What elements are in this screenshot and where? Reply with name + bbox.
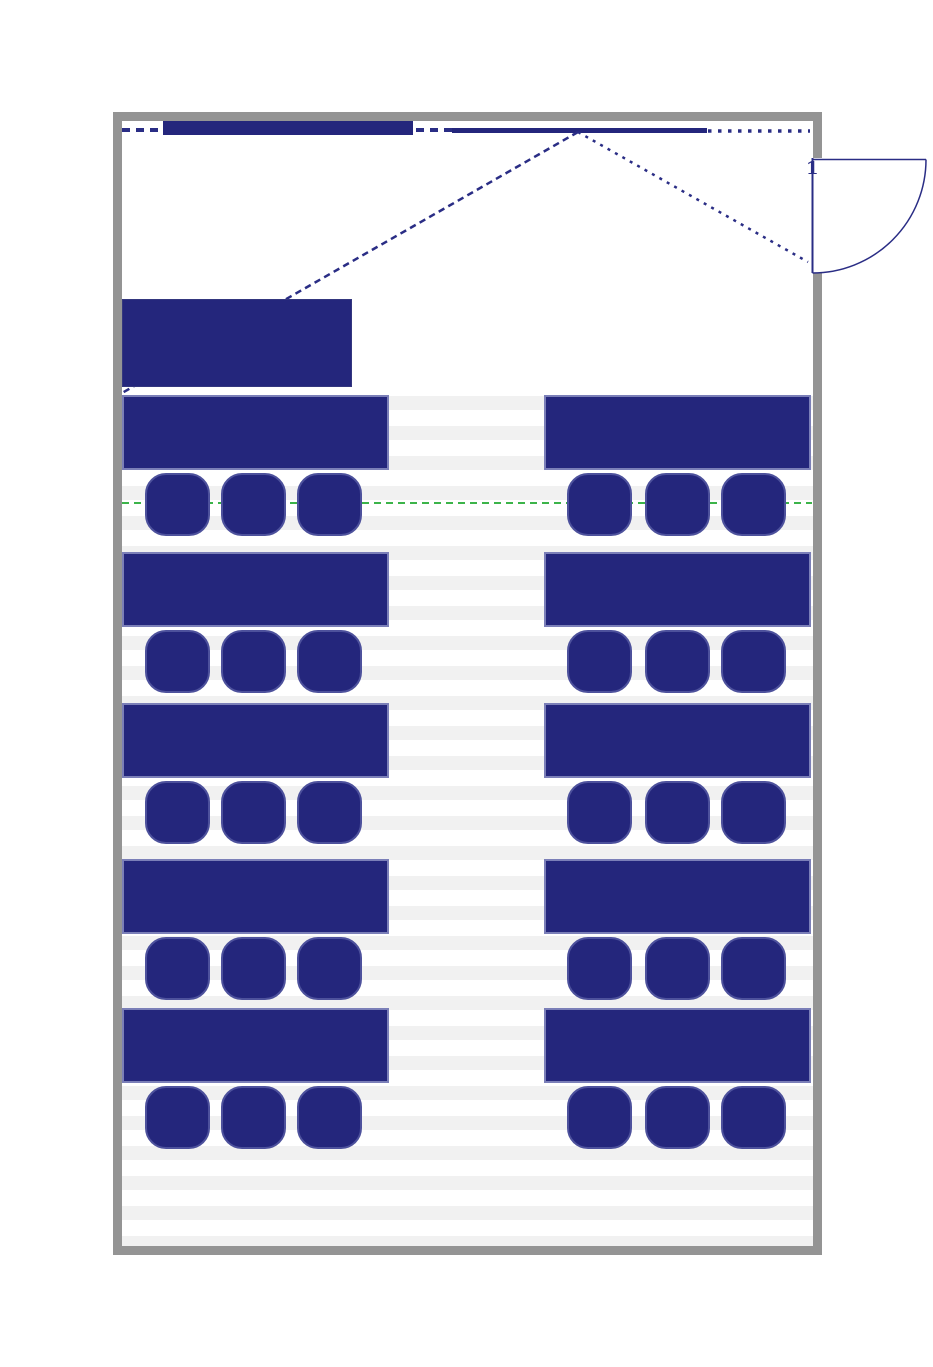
- student-desk-row1-left[interactable]: [122, 395, 389, 470]
- chair-row2-right-1[interactable]: [567, 630, 632, 693]
- chair-row2-right-2[interactable]: [645, 630, 710, 693]
- student-desk-row4-left[interactable]: [122, 859, 389, 934]
- chair-row3-right-2[interactable]: [645, 781, 710, 844]
- chair-row2-left-1[interactable]: [145, 630, 210, 693]
- student-desk-row3-right[interactable]: [544, 703, 811, 778]
- chair-row4-left-2[interactable]: [221, 937, 286, 1000]
- chair-row2-left-3[interactable]: [297, 630, 362, 693]
- chair-row5-right-3[interactable]: [721, 1086, 786, 1149]
- chair-row4-left-1[interactable]: [145, 937, 210, 1000]
- chair-row3-left-3[interactable]: [297, 781, 362, 844]
- chair-row1-left-3[interactable]: [297, 473, 362, 536]
- chair-row1-right-1[interactable]: [567, 473, 632, 536]
- chair-row5-right-2[interactable]: [645, 1086, 710, 1149]
- chair-row3-left-2[interactable]: [221, 781, 286, 844]
- chair-row1-left-2[interactable]: [221, 473, 286, 536]
- student-desk-row3-left[interactable]: [122, 703, 389, 778]
- floor-plan-canvas: 1: [0, 0, 933, 1367]
- chair-row4-right-2[interactable]: [645, 937, 710, 1000]
- chair-row4-left-3[interactable]: [297, 937, 362, 1000]
- chair-row5-left-2[interactable]: [221, 1086, 286, 1149]
- student-desk-row2-right[interactable]: [544, 552, 811, 627]
- chair-row5-left-1[interactable]: [145, 1086, 210, 1149]
- student-desk-row5-right[interactable]: [544, 1008, 811, 1083]
- chair-row3-left-1[interactable]: [145, 781, 210, 844]
- chair-row2-left-2[interactable]: [221, 630, 286, 693]
- student-desk-row1-right[interactable]: [544, 395, 811, 470]
- furniture-layer: [0, 0, 933, 1367]
- teacher-desk[interactable]: [122, 299, 352, 387]
- chair-row4-right-3[interactable]: [721, 937, 786, 1000]
- student-desk-row2-left[interactable]: [122, 552, 389, 627]
- chair-row1-left-1[interactable]: [145, 473, 210, 536]
- chair-row2-right-3[interactable]: [721, 630, 786, 693]
- chair-row3-right-1[interactable]: [567, 781, 632, 844]
- chair-row5-right-1[interactable]: [567, 1086, 632, 1149]
- chair-row4-right-1[interactable]: [567, 937, 632, 1000]
- chair-row1-right-3[interactable]: [721, 473, 786, 536]
- chair-row3-right-3[interactable]: [721, 781, 786, 844]
- chair-row5-left-3[interactable]: [297, 1086, 362, 1149]
- chair-row1-right-2[interactable]: [645, 473, 710, 536]
- student-desk-row5-left[interactable]: [122, 1008, 389, 1083]
- student-desk-row4-right[interactable]: [544, 859, 811, 934]
